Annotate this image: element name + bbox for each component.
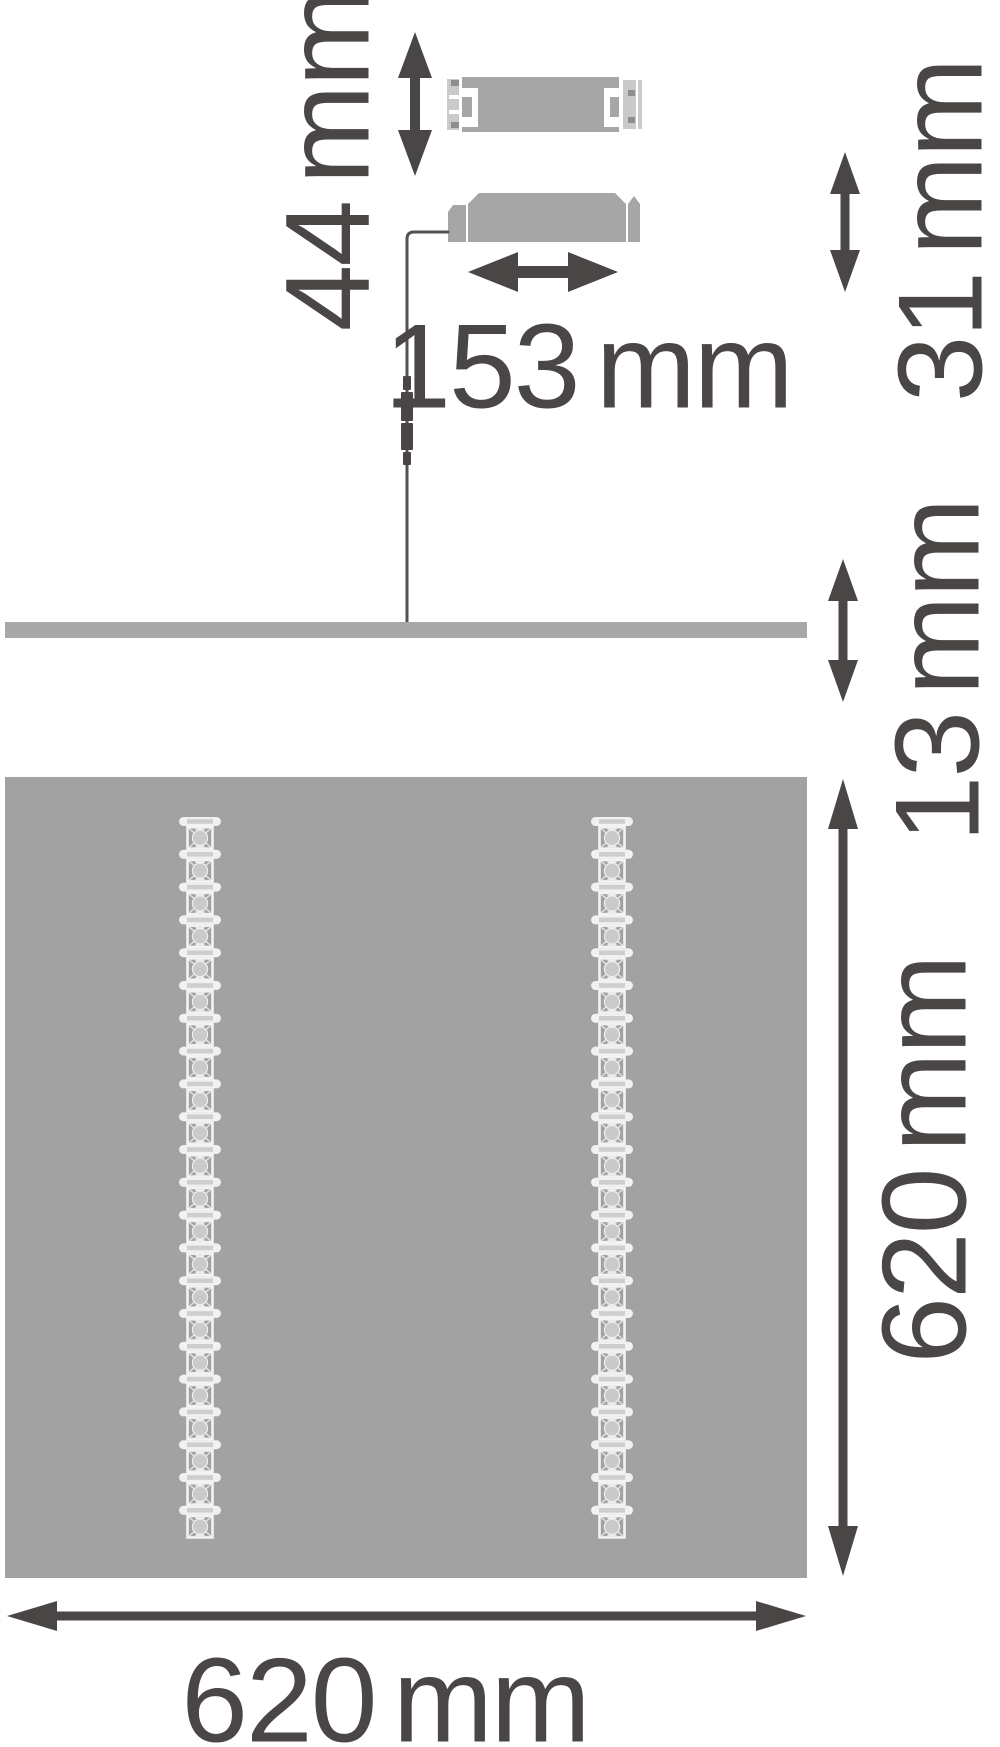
dimension-arrow-620mm-vertical	[828, 779, 858, 1576]
dimension-label-13mm: 13 mm	[876, 500, 1000, 843]
dimension-arrow-620mm-horizontal	[7, 1601, 806, 1631]
dimension-label-153mm: 153 mm	[384, 305, 791, 430]
dimension-drawing: 44 mm 31 mm 153 mm 13 mm 620 mm 620 mm	[0, 0, 1000, 1747]
dimension-label-620mm-horizontal: 620 mm	[181, 1639, 588, 1747]
dimension-label-31mm: 31 mm	[879, 60, 1000, 403]
dimension-label-620mm-vertical: 620 mm	[863, 956, 988, 1363]
panel-top-view	[5, 777, 807, 1578]
dimension-arrow-31mm	[830, 152, 860, 292]
dimension-arrow-153mm	[468, 252, 618, 292]
dimension-arrow-44mm	[398, 32, 432, 176]
dimension-arrow-13mm	[828, 559, 858, 702]
drawing-canvas	[0, 0, 1000, 1747]
dimension-label-44mm: 44 mm	[266, 0, 391, 331]
driver-side-view	[448, 193, 640, 242]
panel-side-view	[5, 622, 807, 638]
driver-top-view	[447, 77, 642, 132]
